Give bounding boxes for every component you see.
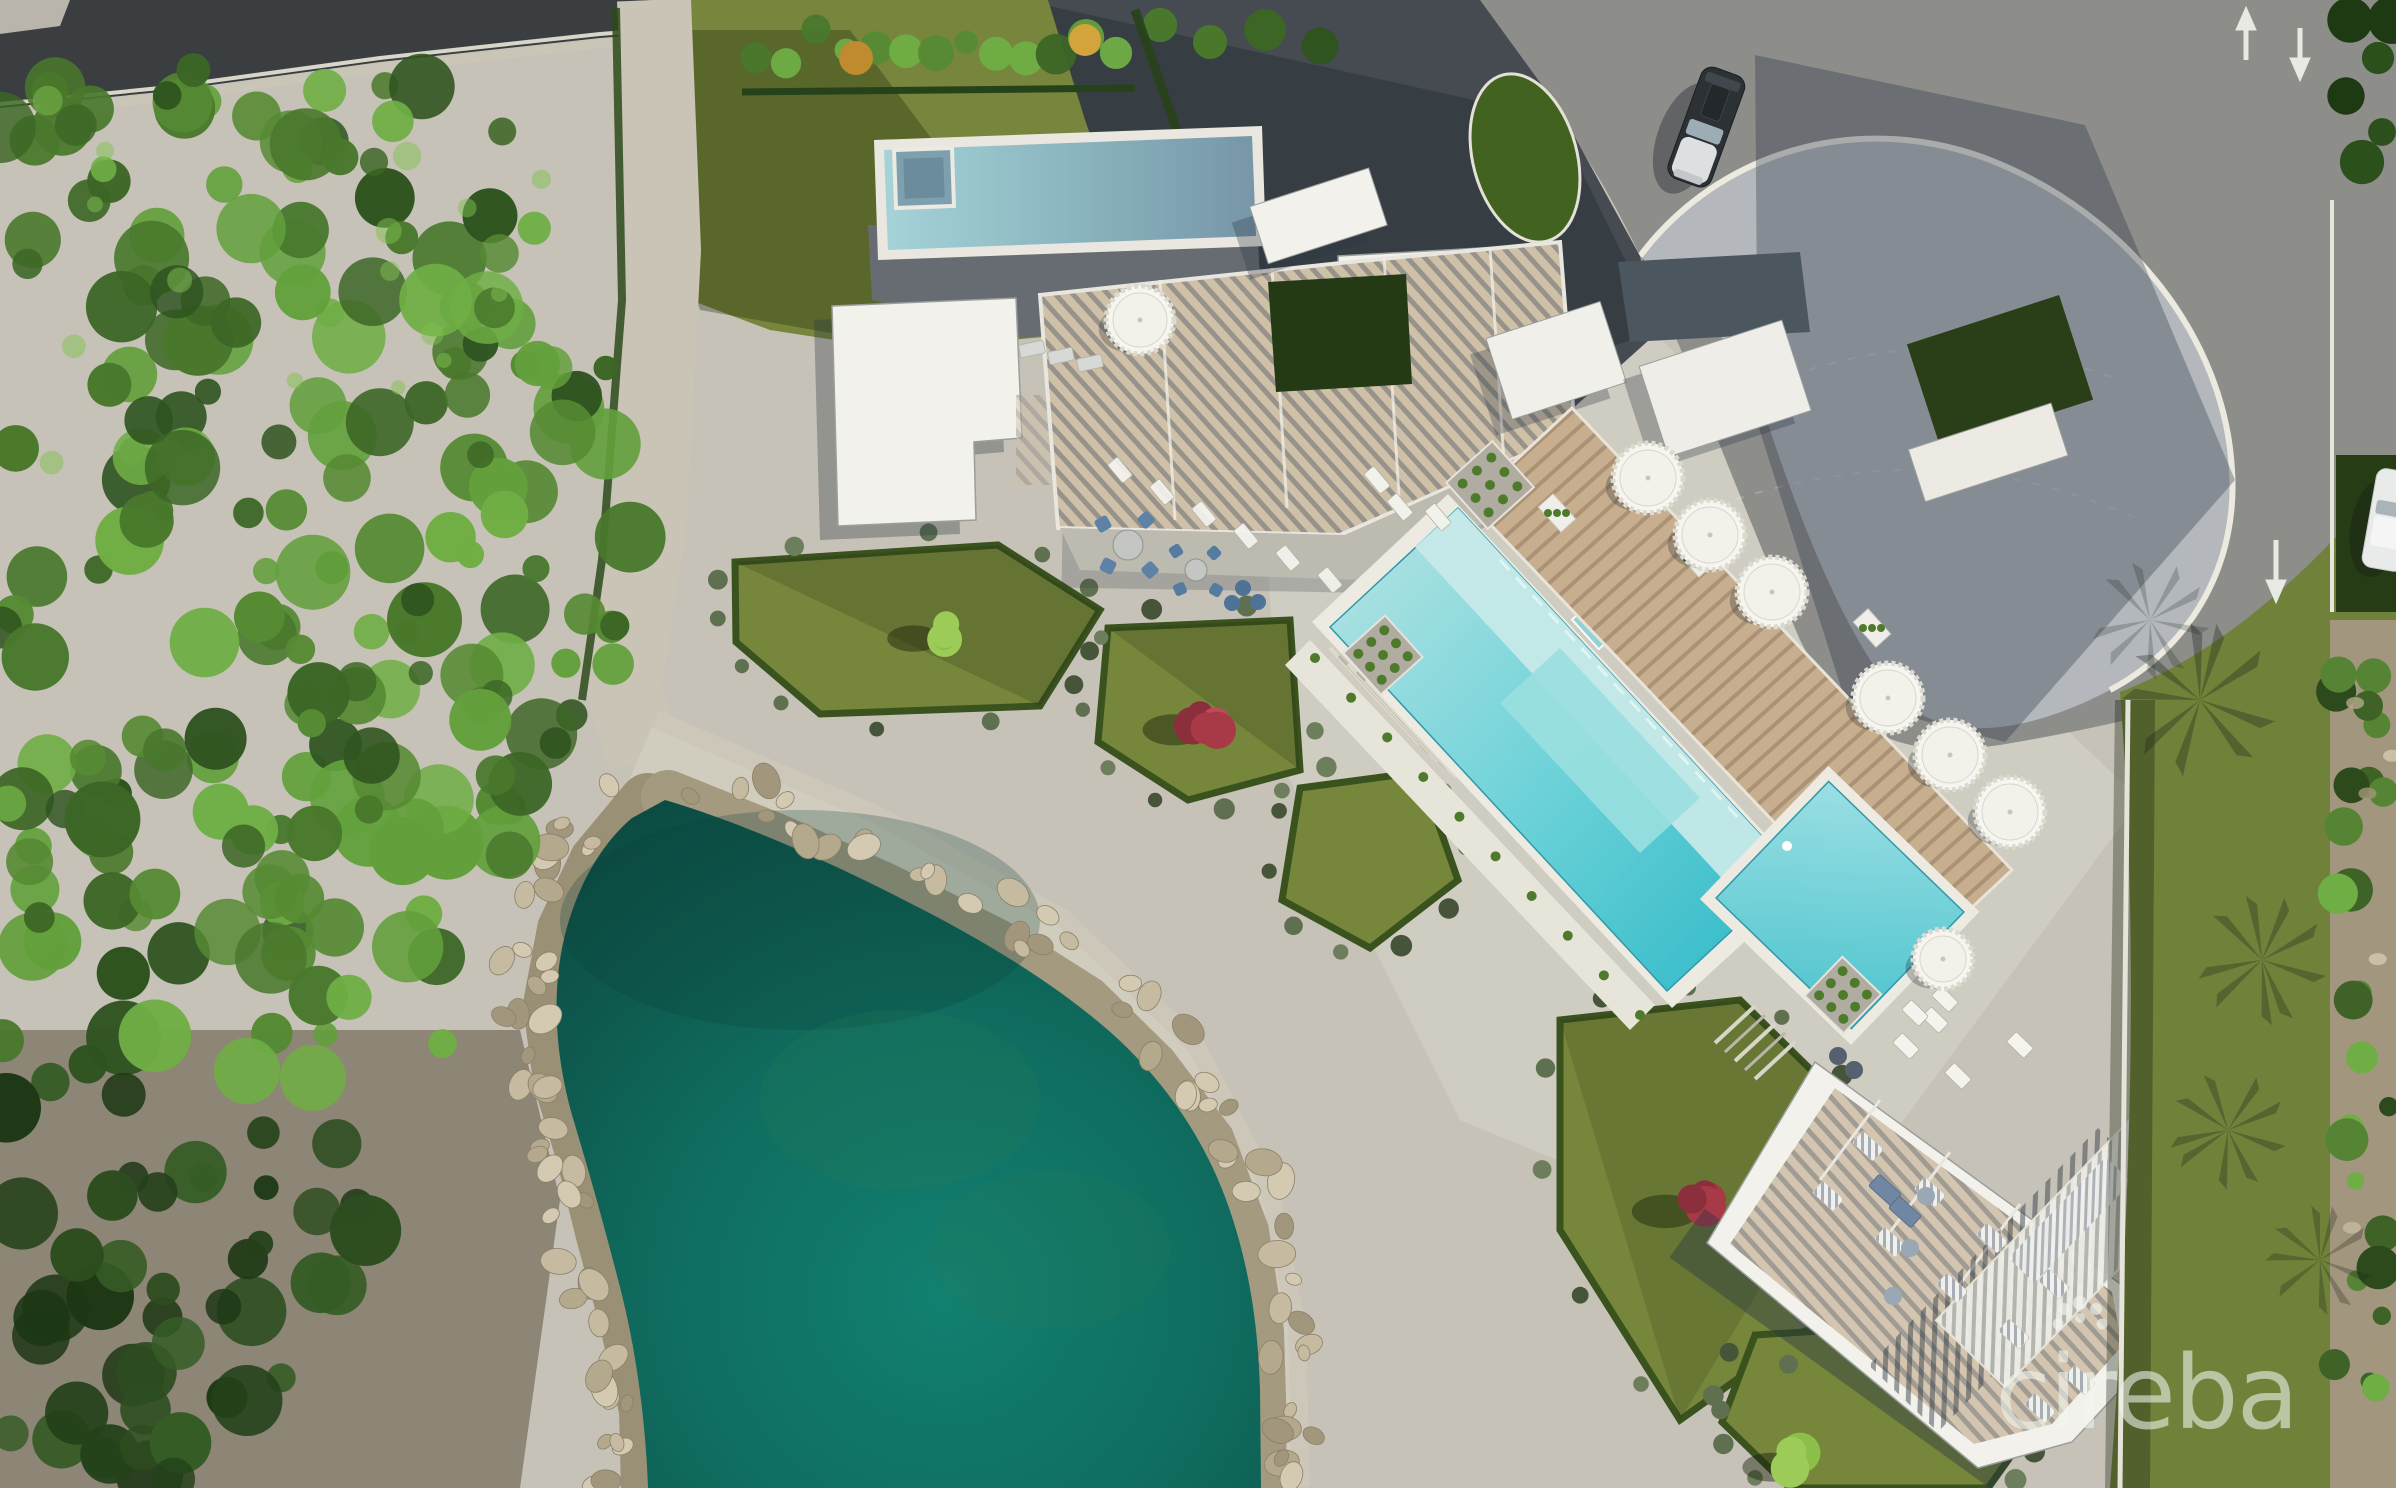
north-path: [624, 0, 664, 760]
watermark-text: cireba: [1995, 1334, 2297, 1453]
site-plan-rendering: cireba: [0, 0, 2396, 1488]
flower-dots-icon: [2040, 1294, 2120, 1340]
green-roof-court: [1268, 274, 1412, 392]
aerial-rendering-canvas: [0, 0, 2396, 1488]
